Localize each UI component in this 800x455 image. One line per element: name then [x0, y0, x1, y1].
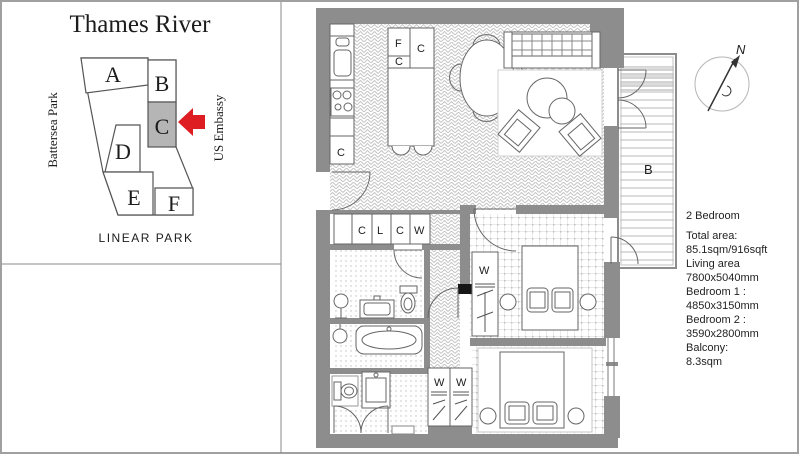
block-d-label: D	[115, 139, 131, 164]
us-embassy-label: US Embassy	[211, 94, 226, 161]
info-line: 2 Bedroom	[686, 209, 796, 223]
balcony	[618, 54, 676, 268]
block-f-label: F	[168, 191, 180, 216]
wall-top	[316, 8, 594, 24]
bedside-table	[480, 408, 496, 424]
wall-hallway-top	[330, 210, 466, 214]
wall-right-bedroom1	[604, 262, 620, 336]
pedestal-basin-2	[333, 329, 347, 343]
info-panel: 2 Bedroom Total area: 85.1sqm/916sqft Li…	[686, 209, 796, 369]
wc-toilet	[334, 382, 357, 400]
wall-bathroom-right	[424, 244, 430, 368]
wall-left-upper	[316, 8, 330, 172]
sofa	[504, 32, 600, 68]
vanity-faucet	[374, 296, 380, 300]
closet-label-l: L	[377, 225, 383, 237]
window-cap-top	[604, 333, 620, 338]
bedside-table	[500, 294, 516, 310]
closet-label-w: W	[414, 225, 425, 237]
kitchen-sink	[334, 50, 351, 76]
wall-bathroom-divider	[330, 318, 426, 324]
floorplan-page: Thames River A B C D E F Battersea Park …	[0, 0, 800, 455]
bedside-table	[568, 408, 584, 424]
info-line: 4850x3150mm	[686, 299, 796, 313]
balcony-label: B	[644, 162, 653, 177]
location-arrow-icon	[178, 108, 205, 136]
closet-label-c2: C	[396, 225, 404, 237]
bedroom1-wardrobe-label: W	[479, 265, 490, 277]
info-line: Bedroom 2 :	[686, 313, 796, 327]
bedroom2-bed	[500, 352, 564, 428]
bedroom-2	[478, 348, 592, 432]
scene: Thames River A B C D E F Battersea Park …	[0, 0, 800, 455]
wall-bedroom-divider	[470, 338, 606, 346]
wall-right-living	[604, 126, 618, 218]
block-e-label: E	[127, 185, 140, 210]
info-line: Total area:	[686, 229, 796, 243]
floor-plan: B	[316, 8, 676, 448]
pedestal-basin	[334, 294, 348, 308]
wc-vanity	[362, 372, 390, 408]
bedroom1-bed	[522, 246, 578, 330]
block-b-label: B	[155, 71, 170, 96]
bedroom2-wardrobe-label-1: W	[434, 377, 445, 389]
wall-bathroom-top-left	[330, 244, 394, 250]
kitchen-stove	[331, 88, 354, 116]
wall-bedroom1-left	[460, 205, 470, 287]
info-line: Living area	[686, 257, 796, 271]
wall-left-lower	[316, 210, 330, 436]
block-a-label: A	[105, 62, 121, 87]
bedside-table	[580, 294, 596, 310]
linear-park-label: LINEAR PARK	[99, 231, 194, 245]
bedroom2-window	[608, 338, 614, 396]
door-threshold	[458, 284, 472, 294]
info-line: 85.1sqm/916sqft	[686, 243, 796, 257]
coffee-table-small	[549, 98, 575, 124]
info-line: Bedroom 1 :	[686, 285, 796, 299]
compass-north-label: N	[736, 42, 746, 57]
island-fridge-label: F	[395, 38, 402, 50]
living-room	[498, 32, 602, 156]
window-cap-bottom	[604, 396, 620, 400]
info-line: 8.3sqm	[686, 355, 796, 369]
info-line: 3590x2800mm	[686, 327, 796, 341]
wall-right-bedroom2	[604, 398, 620, 438]
block-c-label: C	[155, 114, 170, 139]
closet-label-c1: C	[358, 225, 366, 237]
island-cabinet-label-right: C	[417, 43, 425, 55]
battersea-park-label: Battersea Park	[45, 92, 60, 168]
corridor-floor	[427, 214, 460, 368]
wardrobe-base	[428, 426, 472, 434]
wall-bottom	[316, 434, 618, 448]
kitchen-sink-drainer	[336, 38, 349, 46]
info-line: 7800x5040mm	[686, 271, 796, 285]
wall-bedroom1-top-right	[516, 205, 606, 214]
island-cabinet-label-left: C	[395, 56, 403, 68]
floor-mat	[392, 426, 414, 434]
bedroom2-wardrobe-label-2: W	[456, 377, 467, 389]
info-line: Balcony:	[686, 341, 796, 355]
site-map-title: Thames River	[70, 11, 212, 38]
bedroom-1	[472, 246, 596, 336]
counter-cabinet-label: C	[337, 147, 345, 159]
compass-icon: N	[695, 42, 749, 111]
site-map: Thames River A B C D E F Battersea Park …	[45, 11, 226, 245]
